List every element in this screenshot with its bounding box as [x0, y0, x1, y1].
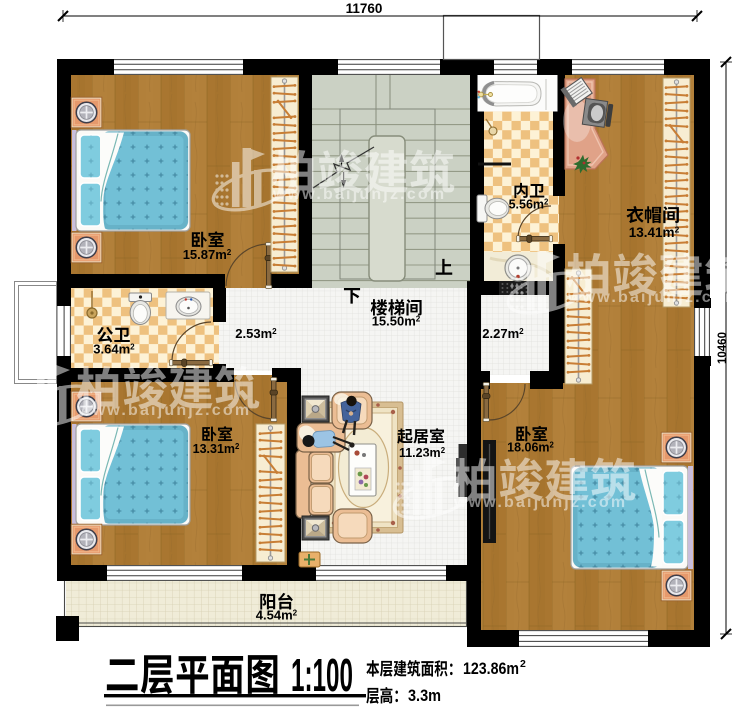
svg-text:4.54m2: 4.54m2: [256, 608, 298, 623]
svg-text:2.27m2: 2.27m2: [482, 326, 524, 341]
svg-text:15.87m2: 15.87m2: [183, 247, 232, 262]
svg-text:11.23m2: 11.23m2: [399, 446, 446, 460]
svg-text:15.50m2: 15.50m2: [372, 314, 421, 329]
svg-text:3.3m: 3.3m: [408, 687, 441, 705]
svg-text:13.31m2: 13.31m2: [193, 442, 240, 456]
svg-text:10460: 10460: [717, 332, 729, 364]
svg-text:2: 2: [520, 658, 526, 670]
svg-text:11760: 11760: [346, 1, 383, 16]
svg-text:18.06m2: 18.06m2: [507, 441, 554, 455]
svg-text:1:100: 1:100: [291, 649, 353, 701]
svg-text:2.53m2: 2.53m2: [235, 326, 277, 341]
svg-text:13.41m2: 13.41m2: [629, 225, 680, 240]
svg-text:5.56m2: 5.56m2: [509, 198, 549, 212]
svg-text:123.86m: 123.86m: [463, 660, 519, 678]
svg-text:3.64m2: 3.64m2: [93, 342, 135, 357]
